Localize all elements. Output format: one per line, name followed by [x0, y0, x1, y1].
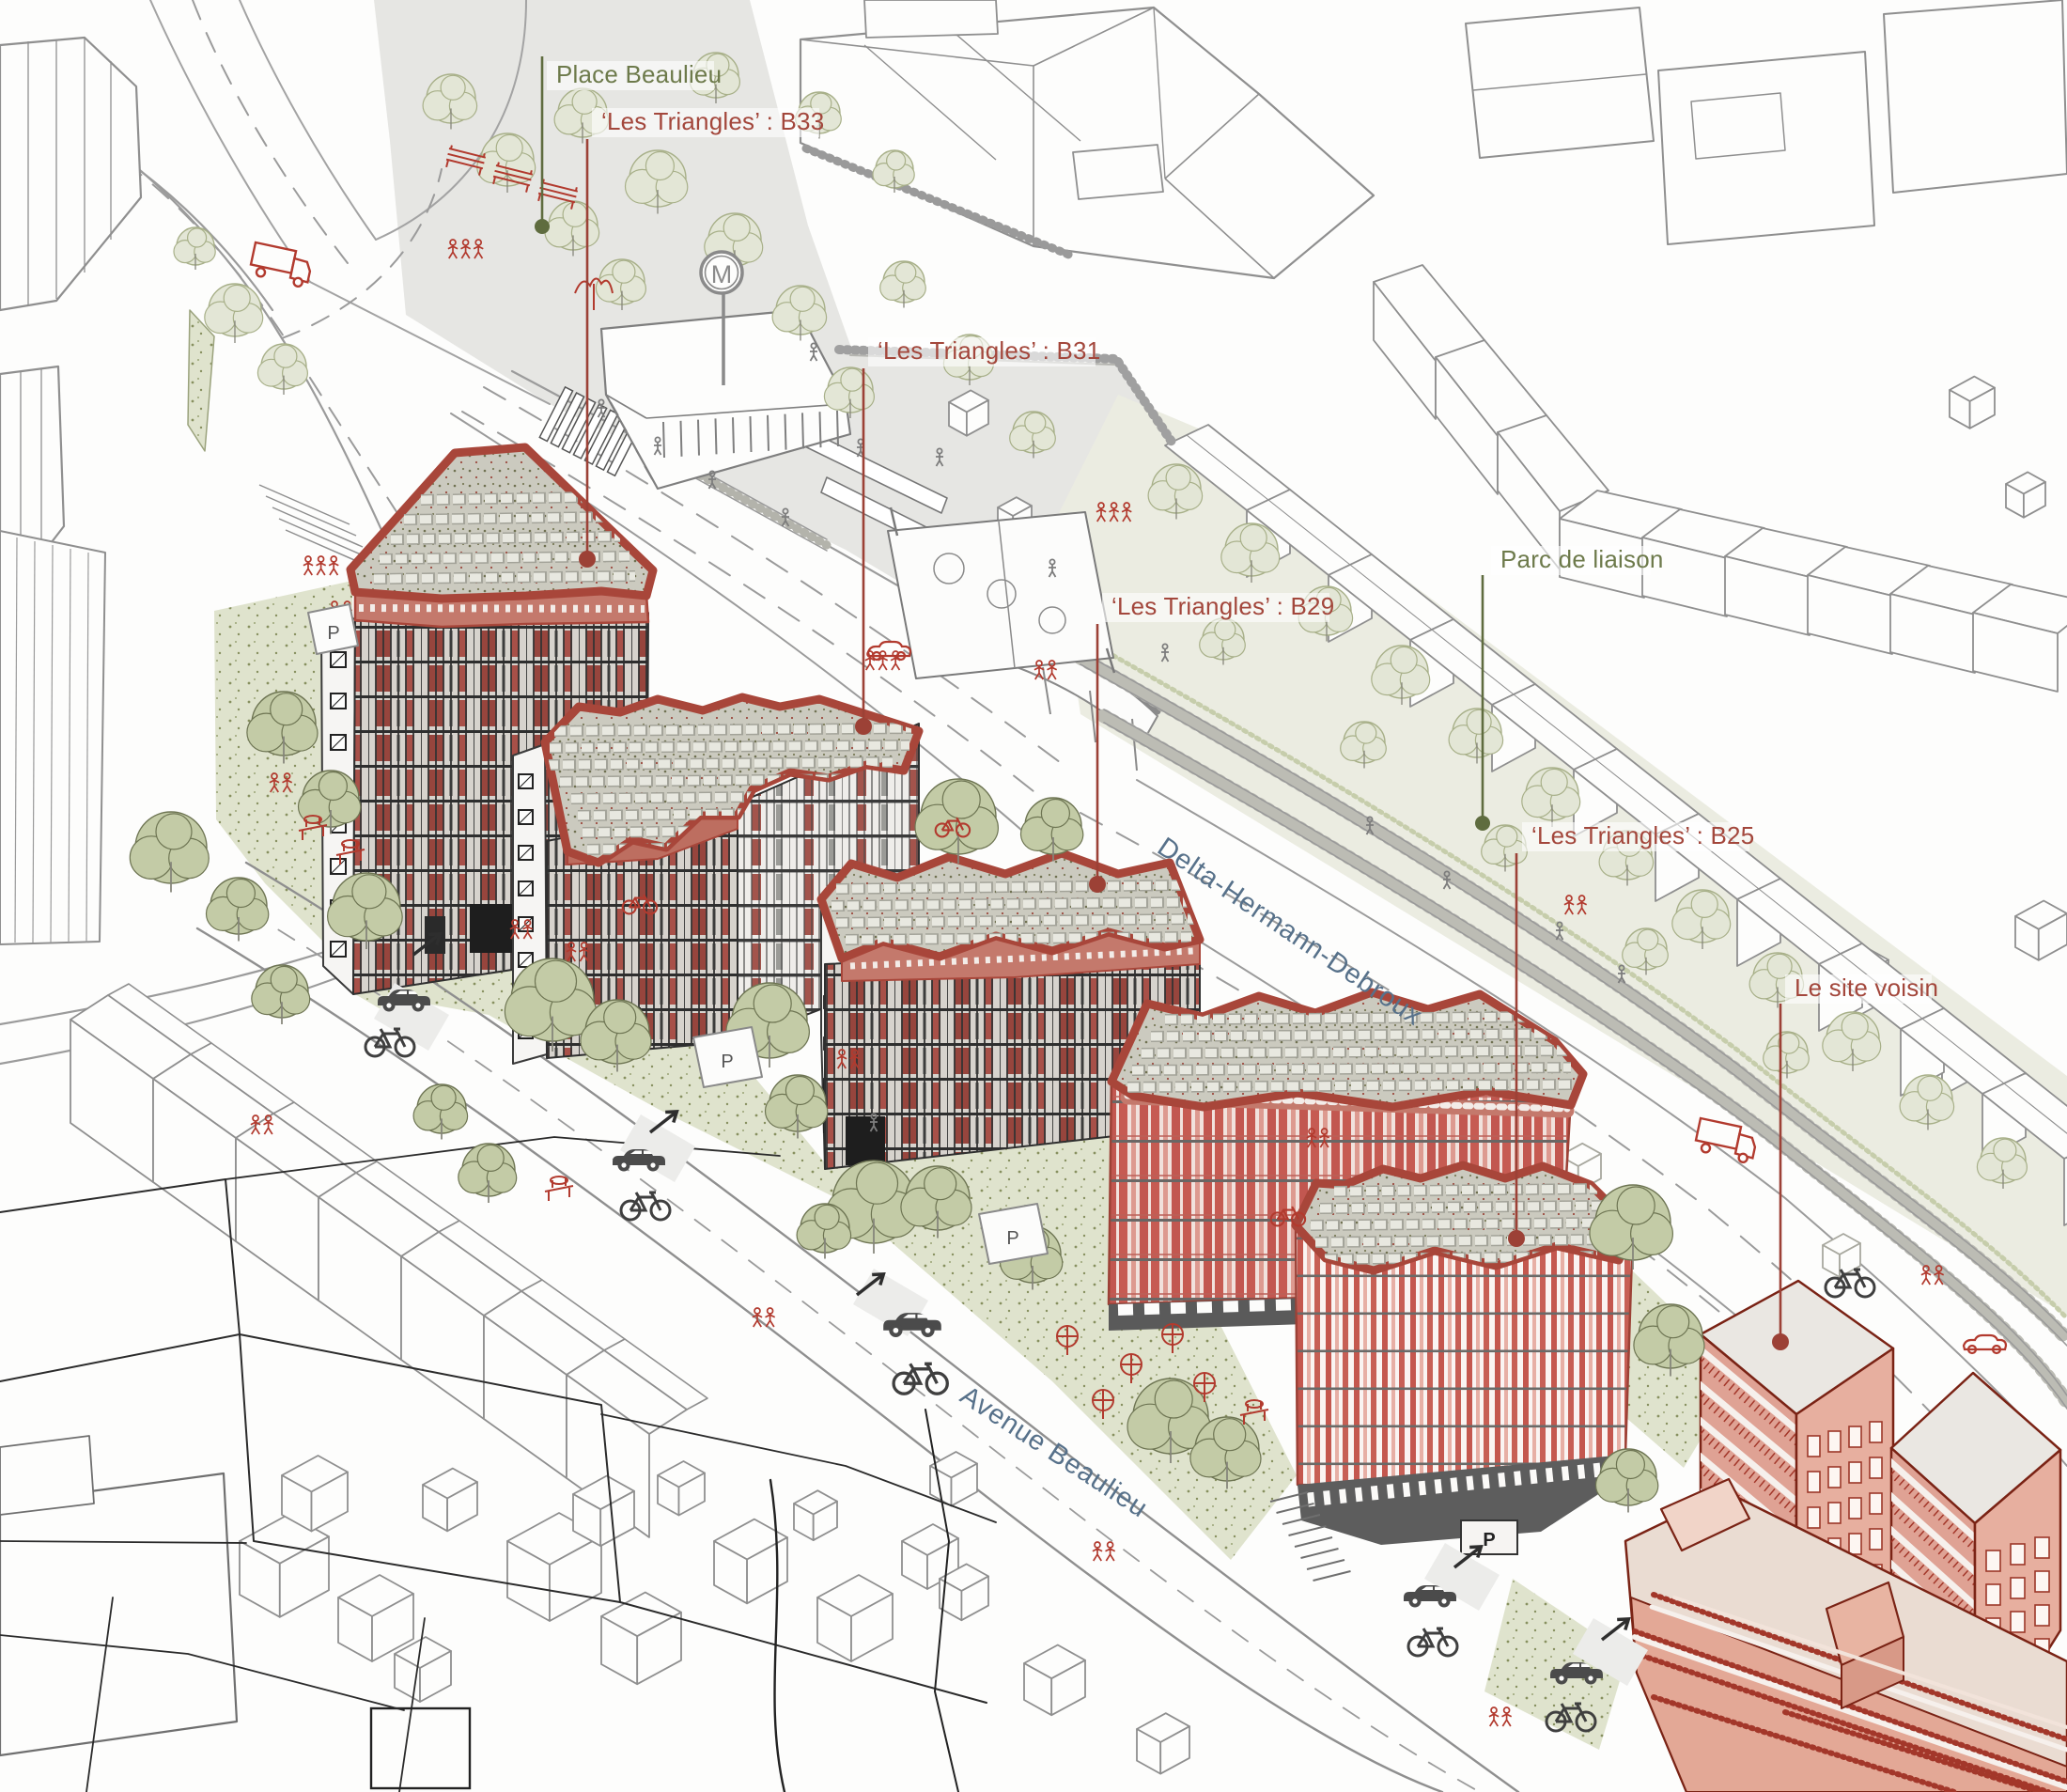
svg-text:‘Les Triangles’ : B29: ‘Les Triangles’ : B29: [1111, 592, 1334, 620]
svg-text:‘Les Triangles’ : B25: ‘Les Triangles’ : B25: [1531, 821, 1754, 849]
svg-text:M: M: [711, 260, 733, 288]
svg-text:‘Les Triangles’ : B31: ‘Les Triangles’ : B31: [878, 336, 1100, 365]
svg-text:‘Les Triangles’ : B33: ‘Les Triangles’ : B33: [601, 107, 824, 135]
svg-text:P: P: [1483, 1530, 1495, 1550]
svg-text:P: P: [1006, 1228, 1018, 1249]
svg-text:Place Beaulieu: Place Beaulieu: [556, 60, 722, 88]
svg-text:Le site voisin: Le site voisin: [1795, 974, 1938, 1002]
svg-text:P: P: [327, 623, 339, 644]
svg-text:Parc de liaison: Parc de liaison: [1500, 545, 1664, 573]
svg-text:P: P: [721, 1052, 733, 1072]
